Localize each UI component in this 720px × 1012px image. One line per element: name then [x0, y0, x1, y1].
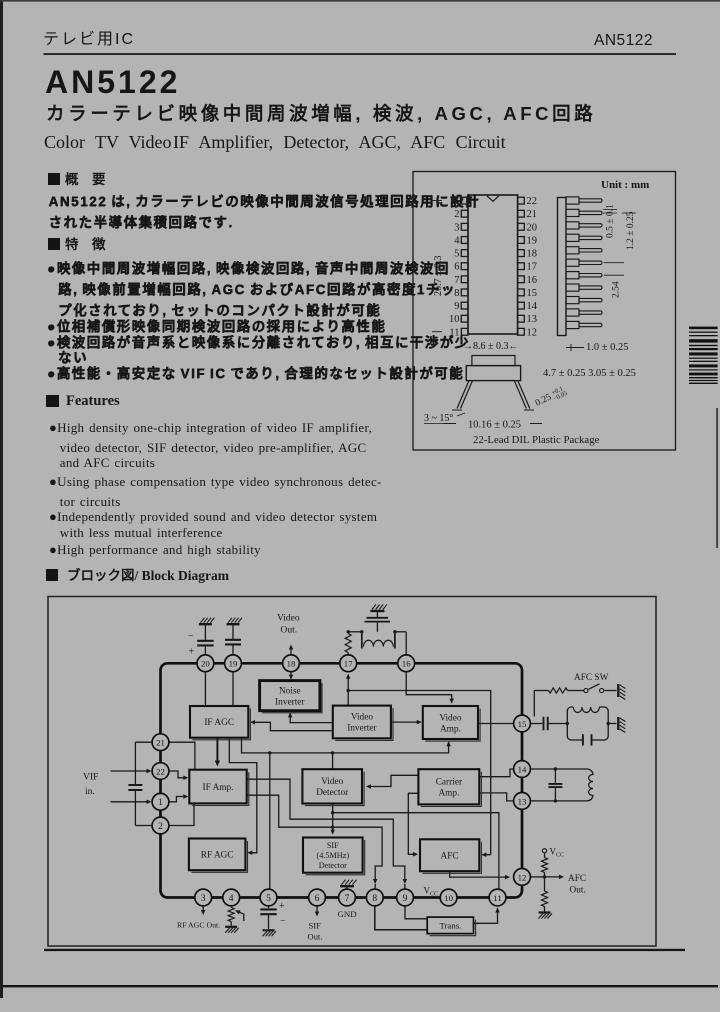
svg-text:VCC: VCC [550, 847, 565, 859]
svg-text:Video: Video [321, 777, 344, 787]
svg-text:13: 13 [527, 314, 538, 325]
svg-text:1.2 ± 0.25: 1.2 ± 0.25 [626, 211, 636, 250]
svg-text:AFC SW: AFC SW [574, 673, 609, 683]
svg-text:26.7 ± 0.3: 26.7 ± 0.3 [433, 256, 444, 297]
svg-text:Detector: Detector [316, 788, 349, 798]
svg-text:22-Lead DIL Plastic Package: 22-Lead DIL Plastic Package [473, 434, 600, 446]
svg-text:RF AGC: RF AGC [201, 851, 234, 861]
svg-text:Video: Video [439, 713, 462, 723]
svg-text:17: 17 [344, 659, 353, 669]
svg-text:11: 11 [449, 327, 459, 338]
svg-text:3: 3 [454, 222, 459, 233]
svg-text:+: + [279, 901, 285, 912]
svg-text:2.54: 2.54 [612, 281, 622, 298]
svg-text:3: 3 [201, 893, 206, 904]
svg-text:14: 14 [527, 301, 538, 312]
svg-text:4: 4 [454, 236, 460, 247]
svg-text:SIF: SIF [327, 841, 339, 850]
svg-text:15: 15 [527, 288, 538, 299]
svg-text:8: 8 [372, 893, 377, 904]
svg-text:IF Amp.: IF Amp. [203, 783, 234, 793]
svg-text:Inverter: Inverter [347, 724, 377, 734]
svg-text:VIF: VIF [83, 773, 98, 783]
svg-text:1: 1 [158, 797, 163, 808]
svg-text:20: 20 [201, 659, 210, 669]
svg-text:Detector: Detector [319, 861, 347, 870]
svg-text:9: 9 [403, 893, 408, 904]
svg-text:18: 18 [287, 659, 296, 669]
svg-text:21: 21 [156, 738, 165, 748]
svg-text:RF AGC Out.: RF AGC Out. [177, 921, 220, 930]
svg-text:19: 19 [527, 236, 538, 247]
svg-text:VCC: VCC [424, 886, 439, 898]
svg-text:6: 6 [315, 893, 320, 904]
svg-text:Out.: Out. [308, 932, 323, 942]
svg-text:→8.6 ± 0.3←: →8.6 ± 0.3← [463, 341, 519, 352]
svg-text:10: 10 [449, 314, 460, 325]
svg-text:−: − [280, 916, 286, 927]
svg-text:12: 12 [527, 327, 538, 338]
svg-text:Video: Video [351, 713, 374, 723]
svg-text:21: 21 [527, 209, 538, 220]
svg-text:22: 22 [527, 196, 538, 207]
svg-text:6: 6 [454, 262, 459, 273]
svg-text:Out.: Out. [570, 886, 586, 896]
svg-text:22: 22 [156, 766, 165, 776]
svg-text:Amp.: Amp. [440, 724, 461, 734]
svg-text:SIF: SIF [309, 921, 322, 931]
svg-text:5: 5 [266, 893, 271, 904]
svg-text:in.: in. [85, 787, 95, 797]
svg-text:Unit : mm: Unit : mm [601, 179, 649, 191]
svg-text:10: 10 [444, 893, 453, 903]
svg-text:Noise: Noise [279, 686, 301, 696]
svg-text:2: 2 [158, 821, 163, 832]
svg-text:10.16 ± 0.25: 10.16 ± 0.25 [468, 420, 521, 431]
svg-text:IF AGC: IF AGC [204, 718, 234, 728]
svg-text:Inverter: Inverter [275, 697, 305, 707]
svg-text:+: + [189, 647, 195, 658]
svg-text:12: 12 [518, 872, 527, 882]
svg-text:15: 15 [518, 719, 527, 729]
svg-text:8: 8 [454, 288, 459, 299]
svg-text:16: 16 [402, 659, 411, 669]
svg-text:4.7 ± 0.25 3.05 ± 0.25: 4.7 ± 0.25 3.05 ± 0.25 [543, 368, 636, 379]
svg-text:17: 17 [527, 262, 538, 273]
svg-text:9: 9 [454, 301, 459, 312]
svg-text:Out.: Out. [281, 626, 298, 636]
svg-text:0.25 +0.1−0.05: 0.25 +0.1−0.05 [533, 384, 568, 410]
svg-text:14: 14 [518, 764, 527, 774]
svg-text:7: 7 [454, 275, 459, 286]
svg-text:1: 1 [454, 196, 459, 207]
svg-text:4: 4 [229, 893, 234, 904]
svg-text:Video: Video [277, 614, 300, 624]
svg-text:20: 20 [527, 222, 538, 233]
svg-text:1.0 ± 0.25: 1.0 ± 0.25 [586, 342, 629, 353]
svg-text:18: 18 [527, 249, 538, 260]
svg-text:Amp.: Amp. [438, 789, 459, 799]
svg-text:16: 16 [527, 275, 538, 286]
svg-text:13: 13 [518, 796, 527, 806]
svg-text:Carrier: Carrier [436, 778, 463, 788]
svg-text:GND: GND [338, 909, 357, 919]
svg-text:5: 5 [454, 249, 459, 260]
svg-text:19: 19 [229, 659, 238, 669]
svg-text:−: − [188, 631, 194, 642]
svg-text:3 ~ 15°: 3 ~ 15° [424, 413, 453, 424]
svg-text:AFC: AFC [441, 852, 459, 862]
svg-text:Trans.: Trans. [439, 920, 461, 930]
svg-text:AFC: AFC [568, 874, 586, 884]
svg-text:(4.5MHz): (4.5MHz) [317, 851, 350, 860]
svg-text:11: 11 [493, 893, 501, 903]
svg-text:7: 7 [345, 893, 350, 904]
svg-text:2: 2 [454, 209, 459, 220]
